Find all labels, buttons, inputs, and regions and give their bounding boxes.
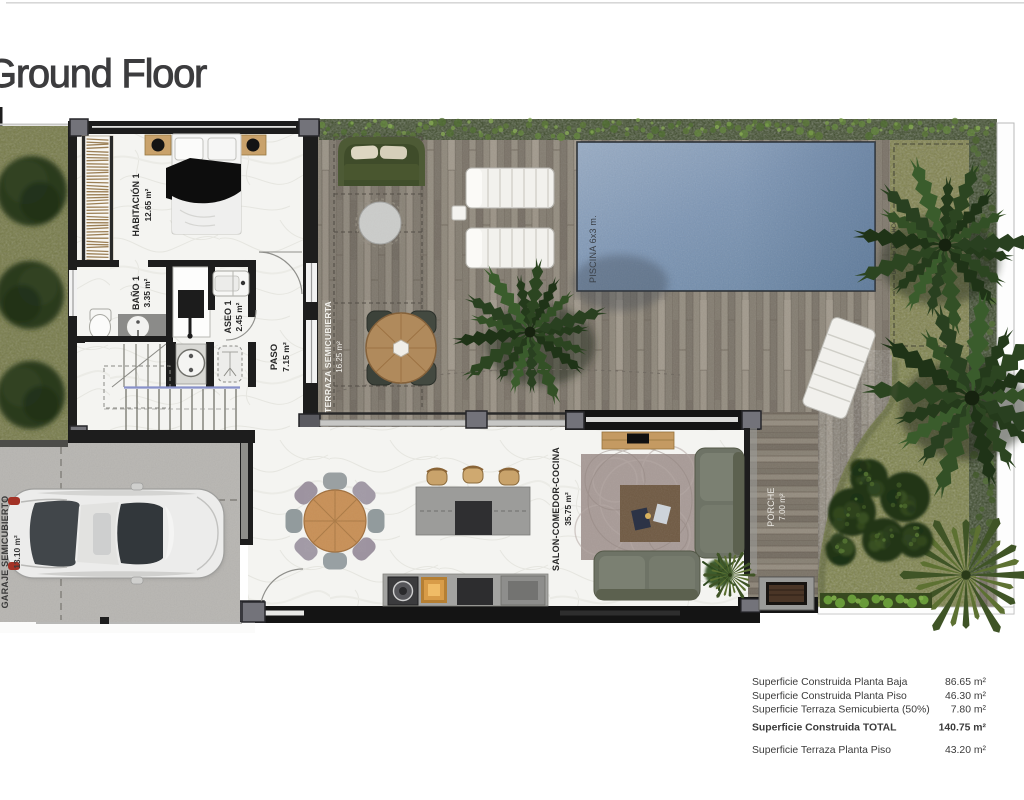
svg-text:ASEO 1: ASEO 1 bbox=[223, 300, 233, 333]
svg-text:13.10 m²: 13.10 m² bbox=[12, 535, 22, 569]
svg-text:SALON-COMEDOR-COCINA: SALON-COMEDOR-COCINA bbox=[551, 447, 561, 571]
svg-text:GARAJE SEMICUBIERTO: GARAJE SEMICUBIERTO bbox=[0, 496, 10, 609]
svg-text:2.45 m²: 2.45 m² bbox=[234, 302, 244, 331]
svg-text:Superficie Terraza Semicubiert: Superficie Terraza Semicubierta (50%) bbox=[752, 705, 930, 716]
svg-text:Superficie Construida Planta P: Superficie Construida Planta Piso bbox=[752, 691, 907, 702]
svg-text:12.65 m²: 12.65 m² bbox=[144, 188, 153, 221]
svg-text:Superficie Terraza Planta Piso: Superficie Terraza Planta Piso bbox=[752, 745, 891, 756]
svg-text:Ground Floor: Ground Floor bbox=[0, 52, 207, 96]
svg-text:86.65 m²: 86.65 m² bbox=[945, 677, 987, 688]
svg-text:PASO: PASO bbox=[269, 344, 280, 370]
svg-text:PORCHE: PORCHE bbox=[766, 487, 776, 526]
svg-text:BAÑO 1: BAÑO 1 bbox=[131, 276, 141, 310]
svg-text:HABITACIÓN 1: HABITACIÓN 1 bbox=[130, 173, 141, 236]
svg-text:Superficie Construida Planta B: Superficie Construida Planta Baja bbox=[752, 677, 908, 688]
svg-text:TERRAZA SEMICUBIERTA: TERRAZA SEMICUBIERTA bbox=[323, 301, 333, 413]
svg-text:Superficie Construida TOTAL: Superficie Construida TOTAL bbox=[752, 723, 897, 734]
svg-text:7.15 m²: 7.15 m² bbox=[281, 342, 291, 372]
svg-text:7.80 m²: 7.80 m² bbox=[951, 705, 987, 716]
svg-text:3.35 m²: 3.35 m² bbox=[142, 278, 152, 307]
svg-text:7.00 m²: 7.00 m² bbox=[778, 493, 787, 520]
svg-text:140.75 m²: 140.75 m² bbox=[939, 723, 987, 734]
svg-text:35.75 m²: 35.75 m² bbox=[563, 492, 573, 526]
svg-text:16.25 m²: 16.25 m² bbox=[335, 341, 344, 373]
svg-text:46.30 m²: 46.30 m² bbox=[945, 691, 987, 702]
svg-text:43.20 m²: 43.20 m² bbox=[945, 745, 987, 756]
